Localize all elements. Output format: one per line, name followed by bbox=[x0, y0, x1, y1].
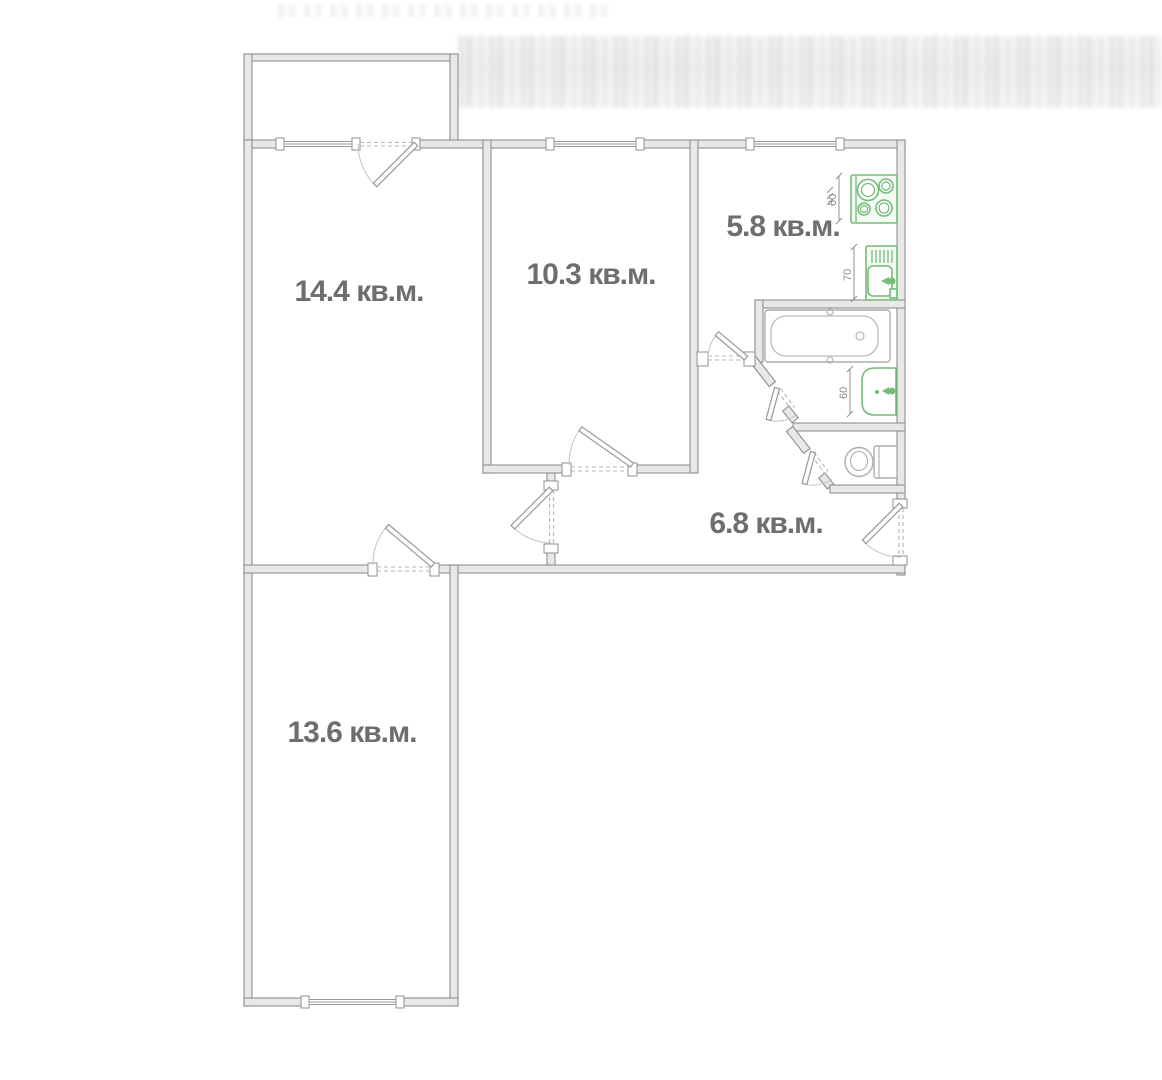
balcony-left-wall bbox=[244, 54, 252, 148]
room2-kitchen-wall bbox=[690, 140, 698, 473]
kitchen-sink-width-label: 70 bbox=[842, 269, 854, 281]
room2-area-label: 10.3 кв.м. bbox=[526, 258, 655, 291]
room1-area-label: 14.4 кв.м. bbox=[294, 275, 423, 308]
hallway-area-label: 6.8 кв.м. bbox=[709, 507, 822, 540]
room3-area-label: 13.6 кв.м. bbox=[287, 716, 416, 749]
washbasin bbox=[862, 368, 896, 415]
room-labels: 14.4 кв.м. 10.3 кв.м. 5.8 кв.м. 6.8 кв.м… bbox=[287, 210, 839, 749]
window-room3 bbox=[301, 996, 404, 1008]
bathroom-left-wall bbox=[755, 300, 763, 362]
entrance-door bbox=[862, 503, 902, 557]
room3-right-wall bbox=[450, 565, 458, 1006]
stove-width-label: 60 bbox=[827, 194, 839, 206]
bathroom-top-wall bbox=[755, 300, 905, 308]
room1-room2-wall bbox=[483, 140, 491, 473]
kitchen-sink bbox=[866, 246, 897, 300]
bathtub bbox=[765, 309, 890, 363]
balcony-right-wall bbox=[450, 54, 458, 148]
washbasin-dimension: 60 bbox=[838, 366, 853, 417]
room2-door bbox=[569, 427, 633, 467]
balcony-door bbox=[358, 142, 418, 187]
kitchen-door bbox=[708, 332, 748, 360]
right-outer-wall bbox=[897, 140, 905, 503]
hallway-doorway-door bbox=[511, 487, 553, 543]
balcony-top-wall bbox=[244, 54, 458, 61]
kitchen-sink-dimension: 70 bbox=[842, 244, 857, 302]
floor-plan-page: 60 70 60 14.4 кв.м. 10.3 кв.м. 5.8 кв.м.… bbox=[0, 0, 1162, 1080]
room3-door bbox=[373, 525, 435, 567]
toilet bbox=[845, 446, 897, 478]
window-room1 bbox=[276, 138, 360, 150]
toilet-bottom-wall bbox=[830, 485, 905, 493]
stove bbox=[851, 175, 897, 223]
window-room2 bbox=[546, 138, 644, 150]
washbasin-width-label: 60 bbox=[838, 387, 850, 399]
kitchen-area-label: 5.8 кв.м. bbox=[726, 210, 839, 243]
window-kitchen bbox=[746, 138, 844, 150]
floor-plan: 60 70 60 14.4 кв.м. 10.3 кв.м. 5.8 кв.м.… bbox=[0, 0, 1162, 1080]
bath-toilet-wall bbox=[793, 423, 905, 431]
